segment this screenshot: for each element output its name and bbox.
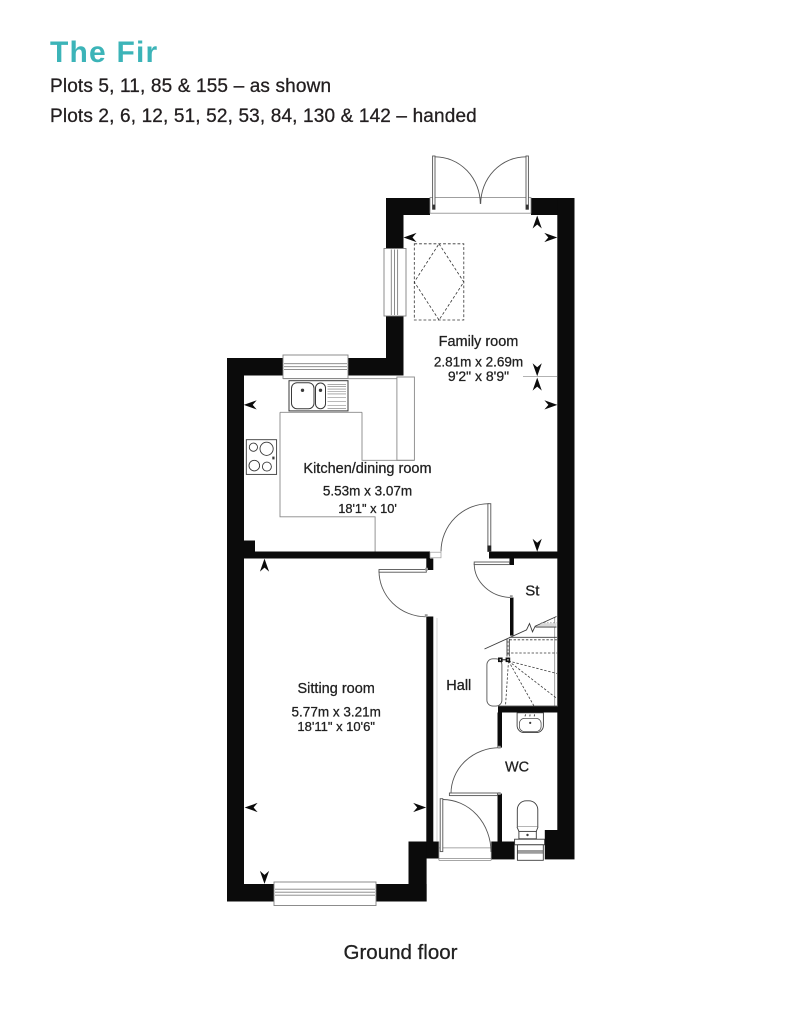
svg-text:Sitting room: Sitting room	[298, 681, 375, 697]
svg-text:5.53m x 3.07m: 5.53m x 3.07m	[323, 483, 412, 498]
svg-text:St: St	[525, 582, 540, 599]
svg-text:18'1" x 10': 18'1" x 10'	[338, 501, 397, 516]
svg-text:18'11" x 10'6": 18'11" x 10'6"	[297, 719, 375, 734]
svg-text:9'2" x 8'9": 9'2" x 8'9"	[448, 368, 509, 384]
svg-text:Ground floor: Ground floor	[344, 941, 458, 964]
svg-text:WC: WC	[505, 760, 529, 776]
svg-text:Family room: Family room	[439, 334, 519, 350]
svg-text:Hall: Hall	[446, 678, 471, 694]
svg-text:Kitchen/dining room: Kitchen/dining room	[303, 461, 431, 477]
svg-text:5.77m x 3.21m: 5.77m x 3.21m	[292, 704, 381, 719]
